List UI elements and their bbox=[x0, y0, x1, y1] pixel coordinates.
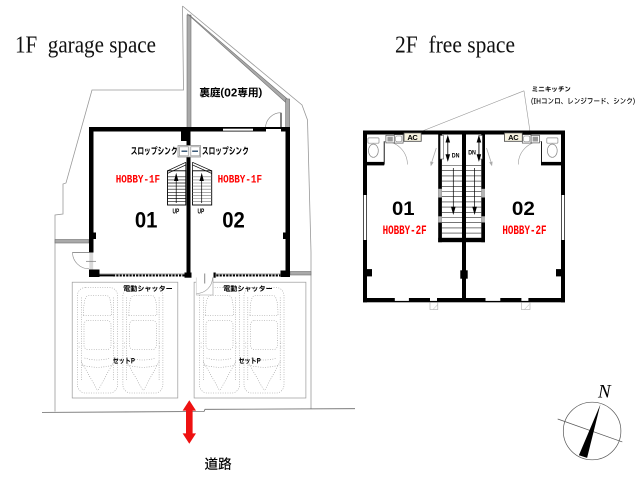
svg-text:01: 01 bbox=[135, 207, 158, 232]
svg-text:02: 02 bbox=[512, 198, 535, 220]
svg-text:HOBBY-1F: HOBBY-1F bbox=[218, 174, 262, 186]
svg-text:AC: AC bbox=[508, 133, 519, 142]
svg-text:HOBBY-2F: HOBBY-2F bbox=[383, 223, 427, 238]
svg-text:UP: UP bbox=[198, 208, 205, 215]
svg-text:02: 02 bbox=[222, 207, 245, 232]
svg-text:2F free space: 2F free space bbox=[395, 33, 515, 59]
svg-text:HOBBY-1F: HOBBY-1F bbox=[116, 174, 160, 186]
svg-text:01: 01 bbox=[392, 198, 415, 220]
svg-text:HOBBY-2F: HOBBY-2F bbox=[502, 223, 546, 238]
svg-text:N: N bbox=[597, 382, 612, 403]
svg-text:DN: DN bbox=[452, 152, 460, 159]
svg-text:1F garage space: 1F garage space bbox=[15, 33, 156, 59]
svg-text:DN: DN bbox=[468, 150, 476, 157]
svg-text:UP: UP bbox=[173, 208, 180, 215]
svg-text:AC: AC bbox=[407, 133, 418, 142]
